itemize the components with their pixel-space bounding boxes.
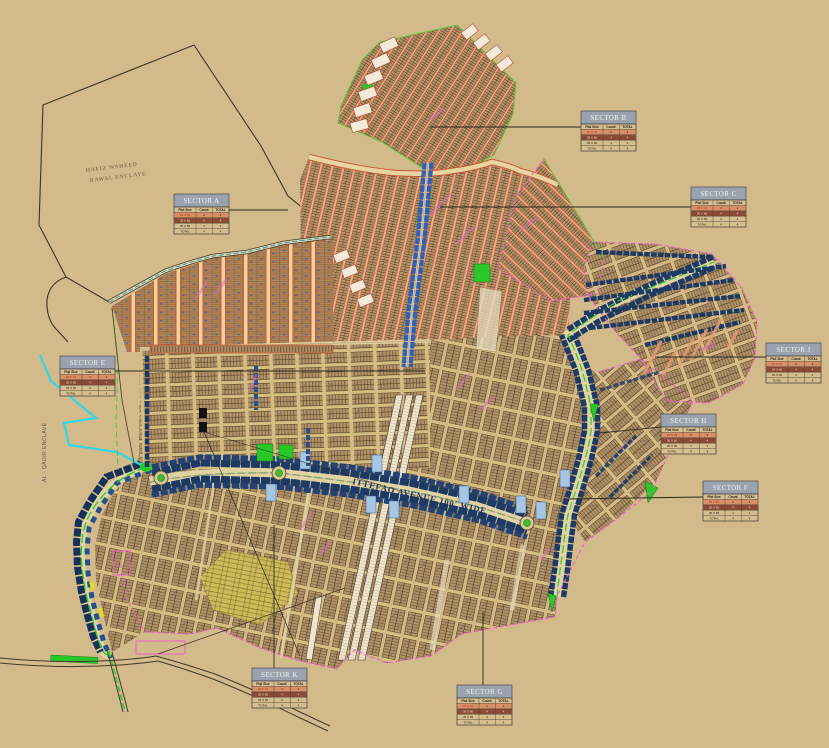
svg-text:35 X 65: 35 X 65 (697, 217, 708, 221)
svg-text:Plot Size: Plot Size (695, 201, 709, 205)
svg-text:25 X 45: 25 X 45 (667, 433, 678, 437)
svg-text:Plot Size: Plot Size (770, 357, 784, 361)
svg-text:TOTAL: TOTAL (744, 495, 754, 499)
svg-text:Count: Count (728, 495, 738, 499)
svg-text:25 X 45: 25 X 45 (463, 704, 474, 708)
svg-text:Count: Count (482, 699, 492, 703)
svg-text:TOTAL: TOTAL (587, 146, 597, 150)
svg-text:30 X 60: 30 X 60 (772, 368, 783, 372)
svg-text:SECTOR B: SECTOR B (590, 115, 626, 122)
svg-text:25 X 45: 25 X 45 (66, 375, 77, 379)
svg-text:SECTOR C: SECTOR C (700, 191, 736, 198)
svg-text:SECTOR A: SECTOR A (183, 198, 219, 205)
svg-text:TOTAL: TOTAL (807, 357, 817, 361)
svg-text:Count: Count (199, 208, 209, 212)
svg-text:Plot Size: Plot Size (585, 125, 599, 129)
svg-text:Count: Count (791, 357, 801, 361)
svg-text:Count: Count (686, 428, 696, 432)
svg-text:Count: Count (716, 201, 726, 205)
svg-text:TOTAL: TOTAL (180, 229, 190, 233)
svg-text:35 X 65: 35 X 65 (667, 444, 678, 448)
svg-text:35 X 65: 35 X 65 (587, 141, 598, 145)
svg-text:35 X 65: 35 X 65 (180, 224, 191, 228)
svg-text:SECTOR F: SECTOR F (713, 485, 748, 492)
svg-text:AL - QADIR ENCLAVE: AL - QADIR ENCLAVE (42, 422, 48, 482)
svg-text:25 X 45: 25 X 45 (709, 500, 720, 504)
svg-text:TOTAL: TOTAL (463, 720, 473, 724)
svg-text:30 X 60: 30 X 60 (667, 439, 678, 443)
svg-text:TOTAL: TOTAL (293, 682, 303, 686)
svg-text:35 X 65: 35 X 65 (66, 386, 77, 390)
svg-text:35 X 65: 35 X 65 (772, 373, 783, 377)
svg-text:TOTAL: TOTAL (101, 370, 111, 374)
svg-text:35 X 65: 35 X 65 (258, 698, 269, 702)
svg-text:Plot Size: Plot Size (178, 208, 192, 212)
svg-text:Plot Size: Plot Size (64, 370, 78, 374)
svg-text:25 X 45: 25 X 45 (258, 687, 269, 691)
svg-text:25 X 45: 25 X 45 (180, 213, 191, 217)
svg-text:TOTAL: TOTAL (702, 428, 712, 432)
svg-text:30 X 60: 30 X 60 (709, 506, 720, 510)
svg-text:SECTOR H: SECTOR H (670, 418, 707, 425)
svg-text:Count: Count (606, 125, 616, 129)
svg-text:SECTOR J: SECTOR J (776, 347, 810, 354)
svg-text:TOTAL: TOTAL (697, 222, 707, 226)
svg-text:TOTAL: TOTAL (215, 208, 225, 212)
svg-text:30 X 60: 30 X 60 (463, 710, 474, 714)
svg-text:30 X 60: 30 X 60 (180, 219, 191, 223)
svg-text:35 X 65: 35 X 65 (463, 715, 474, 719)
svg-text:25 X 45: 25 X 45 (772, 362, 783, 366)
svg-text:Plot Size: Plot Size (461, 699, 475, 703)
svg-text:25 X 45: 25 X 45 (697, 206, 708, 210)
svg-text:SECTOR E: SECTOR E (70, 360, 106, 367)
svg-text:Plot Size: Plot Size (256, 682, 270, 686)
svg-text:30 X 60: 30 X 60 (697, 212, 708, 216)
svg-text:TOTAL: TOTAL (772, 378, 782, 382)
svg-text:TOTAL: TOTAL (66, 391, 76, 395)
svg-text:35 X 65: 35 X 65 (709, 511, 720, 515)
svg-text:Count: Count (277, 682, 287, 686)
svg-text:Plot Size: Plot Size (707, 495, 721, 499)
svg-text:TOTAL: TOTAL (258, 703, 268, 707)
svg-text:TOTAL: TOTAL (709, 516, 719, 520)
svg-text:TOTAL: TOTAL (667, 449, 677, 453)
svg-text:TOTAL: TOTAL (498, 699, 508, 703)
svg-text:30 X 60: 30 X 60 (66, 381, 77, 385)
svg-text:30 X 60: 30 X 60 (587, 136, 598, 140)
svg-text:TOTAL: TOTAL (622, 125, 632, 129)
svg-text:SECTOR K: SECTOR K (261, 672, 298, 679)
svg-text:Count: Count (85, 370, 95, 374)
svg-text:25 X 45: 25 X 45 (587, 130, 598, 134)
svg-text:Plot Size: Plot Size (665, 428, 679, 432)
svg-text:30 X 60: 30 X 60 (258, 693, 269, 697)
svg-text:SECTOR G: SECTOR G (466, 689, 503, 696)
svg-text:TOTAL: TOTAL (732, 201, 742, 205)
